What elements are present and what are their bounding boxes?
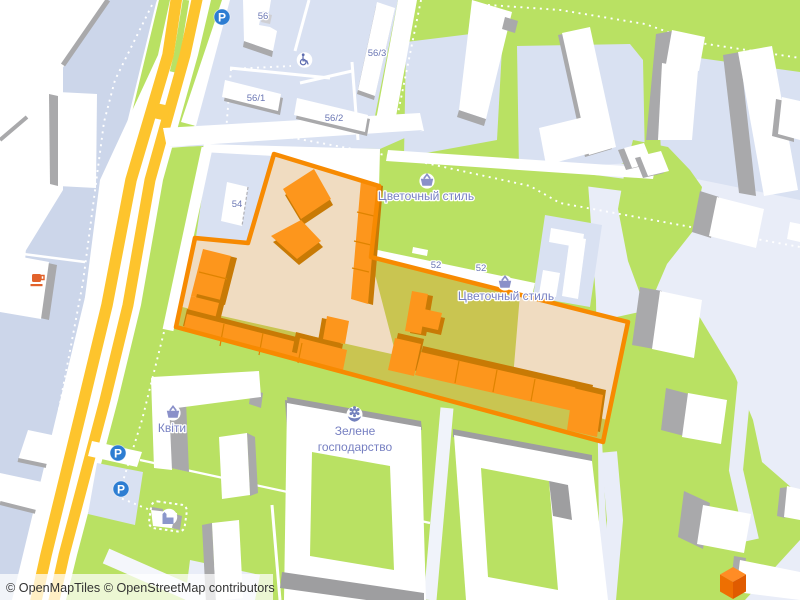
svg-text:Цветочный стиль: Цветочный стиль	[378, 189, 474, 203]
svg-text:P: P	[218, 10, 226, 24]
svg-text:54: 54	[232, 199, 243, 210]
svg-text:56/3: 56/3	[368, 48, 387, 59]
svg-text:56/2: 56/2	[325, 113, 344, 124]
svg-text:P: P	[114, 446, 122, 460]
svg-text:Цветочный стиль: Цветочный стиль	[458, 289, 554, 303]
svg-text:P: P	[117, 482, 125, 496]
svg-text:52: 52	[476, 263, 487, 274]
svg-text:56/1: 56/1	[247, 93, 266, 104]
svg-text:господарство: господарство	[318, 440, 393, 454]
svg-text:Зелене: Зелене	[335, 424, 376, 438]
svg-text:© OpenMapTiles © OpenStreetMap: © OpenMapTiles © OpenStreetMap contribut…	[6, 581, 275, 595]
svg-text:52: 52	[431, 260, 442, 271]
svg-text:Квіти: Квіти	[158, 421, 186, 435]
svg-text:56: 56	[258, 11, 269, 22]
